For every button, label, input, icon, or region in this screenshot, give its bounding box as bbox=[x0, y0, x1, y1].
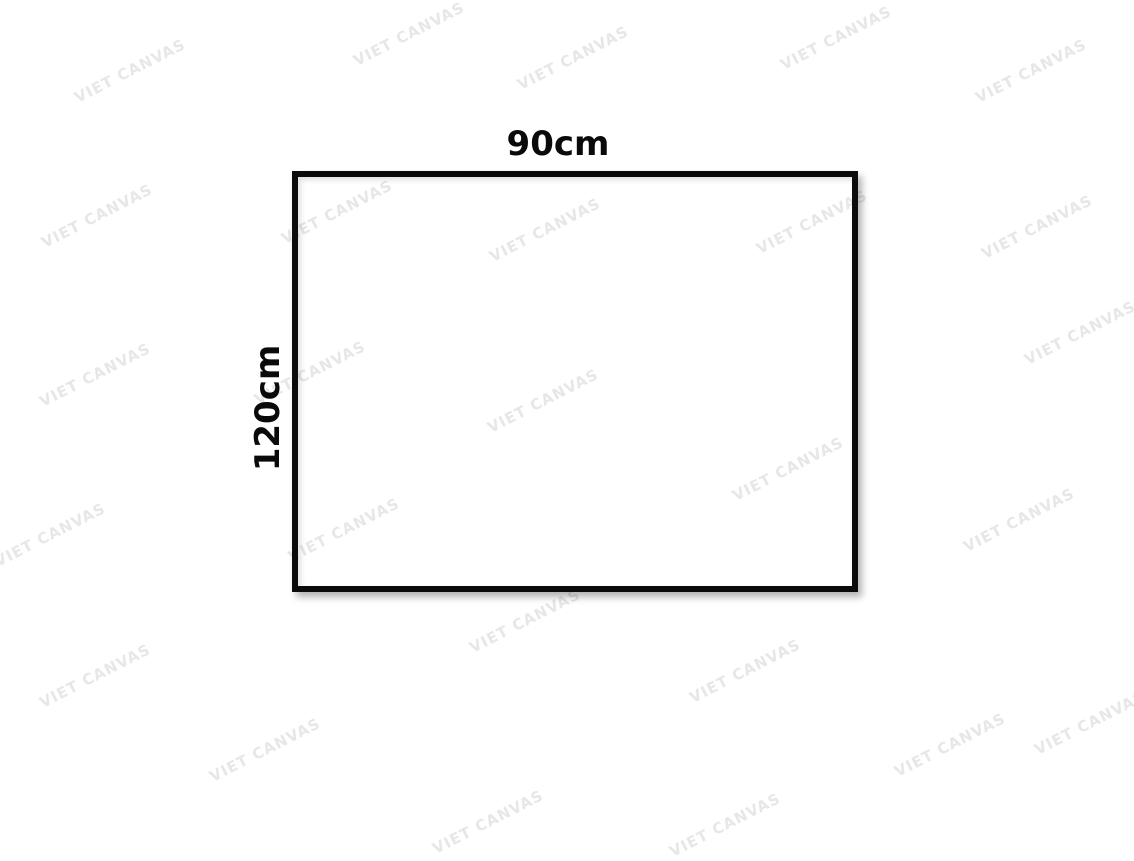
watermark-text: VIET CANVAS bbox=[892, 709, 1009, 780]
watermark-text: VIET CANVAS bbox=[430, 786, 547, 857]
mockup-stage: VIET CANVASVIET CANVASVIET CANVASVIET CA… bbox=[0, 0, 1134, 850]
watermark-text: VIET CANVAS bbox=[979, 191, 1096, 262]
watermark-text: VIET CANVAS bbox=[515, 22, 632, 93]
watermark-text: VIET CANVAS bbox=[467, 585, 584, 656]
watermark-text: VIET CANVAS bbox=[37, 339, 154, 410]
watermark-text: VIET CANVAS bbox=[37, 640, 154, 711]
watermark-text: VIET CANVAS bbox=[351, 0, 468, 70]
height-dimension-label: 120cm bbox=[248, 345, 288, 472]
watermark-text: VIET CANVAS bbox=[207, 714, 324, 785]
watermark-text: VIET CANVAS bbox=[72, 35, 189, 106]
watermark-text: VIET CANVAS bbox=[778, 2, 895, 73]
watermark-text: VIET CANVAS bbox=[39, 180, 156, 251]
width-dimension-label: 90cm bbox=[275, 124, 841, 164]
watermark-text: VIET CANVAS bbox=[667, 789, 784, 860]
watermark-text: VIET CANVAS bbox=[1032, 687, 1134, 758]
watermark-text: VIET CANVAS bbox=[687, 635, 804, 706]
watermark-text: VIET CANVAS bbox=[0, 499, 108, 570]
watermark-text: VIET CANVAS bbox=[1022, 297, 1134, 368]
watermark-text: VIET CANVAS bbox=[973, 35, 1090, 106]
watermark-text: VIET CANVAS bbox=[961, 484, 1078, 555]
canvas-frame bbox=[292, 171, 858, 592]
